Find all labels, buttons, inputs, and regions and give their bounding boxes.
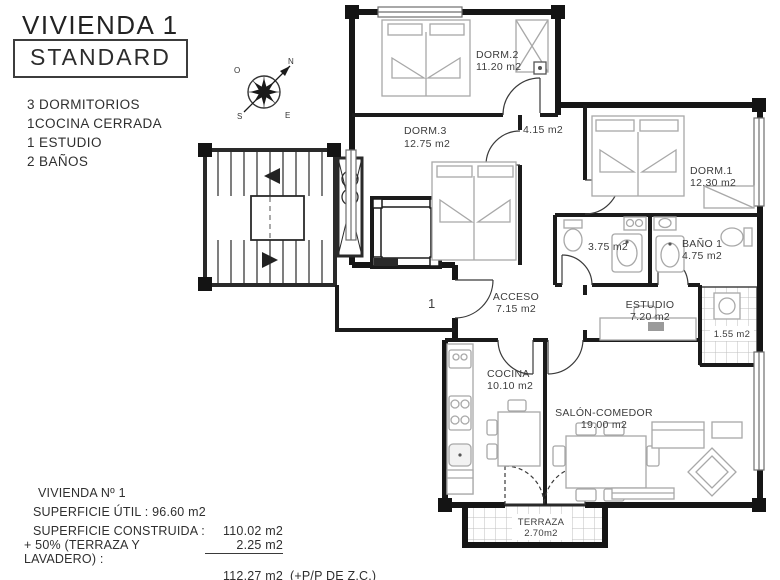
dorm1-bed bbox=[592, 116, 684, 196]
compass-icon: N O S E bbox=[234, 57, 294, 121]
label-cocina-area: 10.10 m2 bbox=[487, 380, 533, 392]
label-dorm3-area: 12.75 m2 bbox=[404, 138, 450, 150]
door-entrance bbox=[455, 280, 493, 318]
label-salon-area: 19.00 m2 bbox=[581, 419, 627, 431]
label-bath2-area: 3.75 m2 bbox=[588, 241, 628, 253]
tv-bench bbox=[612, 488, 674, 499]
door-salon bbox=[548, 340, 583, 374]
elevator bbox=[372, 198, 440, 267]
kitchen-table bbox=[487, 400, 540, 466]
label-dorm1-name: DORM.1 bbox=[690, 165, 733, 177]
window-dorm1 bbox=[754, 118, 764, 206]
label-estudio-area: 7.20 m2 bbox=[630, 311, 670, 323]
sideboard bbox=[712, 422, 742, 438]
label-dorm2-name: DORM.2 bbox=[476, 49, 519, 61]
dorm3-bed bbox=[432, 162, 516, 260]
window-salon bbox=[754, 352, 764, 470]
corridor-walls bbox=[337, 285, 455, 330]
dorm1-wardrobe bbox=[704, 186, 754, 208]
compass-n: N bbox=[288, 57, 294, 66]
label-dorm3-name: DORM.3 bbox=[404, 125, 447, 137]
compass-o: O bbox=[234, 66, 241, 75]
label-dorm2-area: 11.20 m2 bbox=[476, 61, 521, 73]
armchair bbox=[688, 448, 736, 496]
lavadero-washer bbox=[714, 293, 740, 319]
label-dorm1-area: 12.30 m2 bbox=[690, 177, 736, 189]
label-hall-area: 4.15 m2 bbox=[523, 124, 563, 136]
door-bath2 bbox=[562, 255, 592, 285]
door-dorm2 bbox=[503, 78, 540, 115]
window-dorm3 bbox=[346, 150, 356, 240]
compass-s: S bbox=[237, 112, 243, 121]
floor-plan: N O S E DORM.2 11.20 m2 DORM.3 12.75 m2 … bbox=[0, 0, 780, 580]
label-acceso-name: ACCESO bbox=[493, 291, 539, 303]
label-estudio-name: ESTUDIO bbox=[626, 299, 675, 311]
plan-number-marker: 1 bbox=[428, 296, 436, 311]
window-dorm2 bbox=[378, 7, 462, 17]
label-acceso-area: 7.15 m2 bbox=[496, 303, 536, 315]
label-lavadero-area: 1.55 m2 bbox=[714, 329, 750, 340]
label-cocina-name: COCINA bbox=[487, 368, 530, 380]
stairwell bbox=[205, 150, 335, 285]
label-terraza-name: TERRAZA bbox=[518, 517, 565, 528]
label-terraza-area: 2.70m2 bbox=[524, 528, 558, 539]
floorplan-sheet: VIVIENDA 1 STANDARD 3 DORMITORIOS 1COCIN… bbox=[0, 0, 780, 580]
sofa bbox=[652, 422, 704, 448]
dorm2-bed bbox=[382, 20, 470, 96]
label-salon-name: SALÓN-COMEDOR bbox=[555, 406, 653, 419]
door-dorm3 bbox=[486, 131, 520, 165]
label-bath1-name: BAÑO 1 bbox=[682, 237, 722, 250]
kitchen-counter bbox=[447, 344, 473, 494]
compass-e: E bbox=[285, 111, 291, 120]
label-bath1-area: 4.75 m2 bbox=[682, 250, 722, 262]
